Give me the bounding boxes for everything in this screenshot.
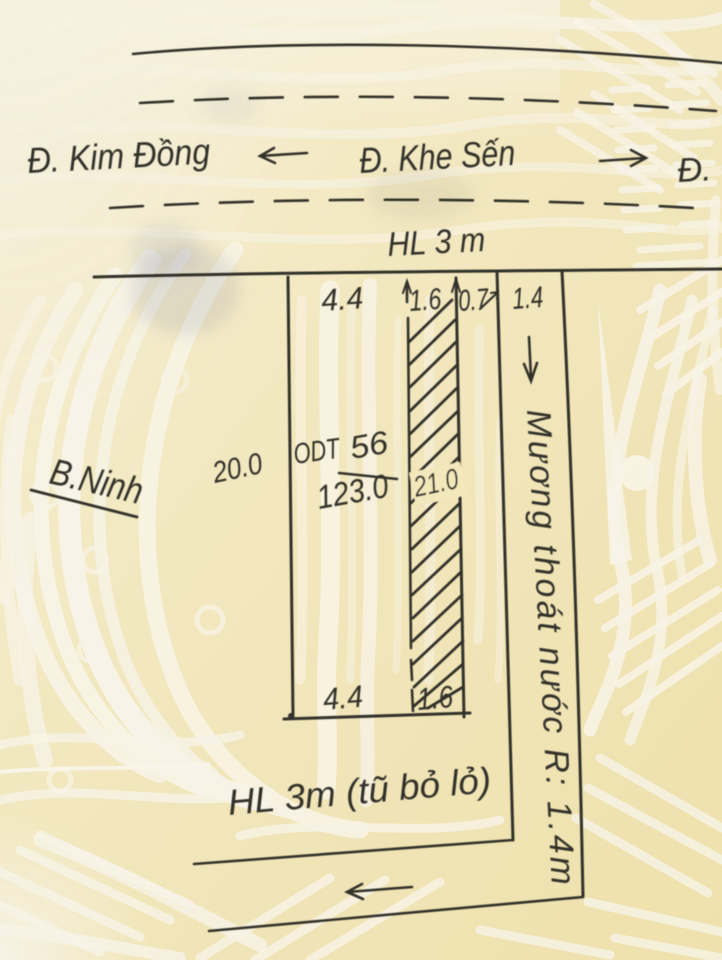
svg-text:1.6: 1.6 bbox=[408, 283, 442, 318]
svg-text:Đ. C: Đ. C bbox=[676, 148, 722, 190]
svg-text:1.4: 1.4 bbox=[511, 281, 544, 316]
svg-text:HL 3 m: HL 3 m bbox=[386, 221, 486, 264]
svg-text:ODT: ODT bbox=[292, 433, 344, 471]
svg-text:0.7: 0.7 bbox=[457, 283, 490, 318]
svg-text:Đ. Khe Sến: Đ. Khe Sến bbox=[358, 132, 516, 181]
svg-text:56: 56 bbox=[347, 424, 391, 466]
svg-text:4.4: 4.4 bbox=[322, 679, 365, 717]
svg-text:4.4: 4.4 bbox=[320, 280, 364, 318]
svg-text:1.6: 1.6 bbox=[416, 679, 456, 717]
